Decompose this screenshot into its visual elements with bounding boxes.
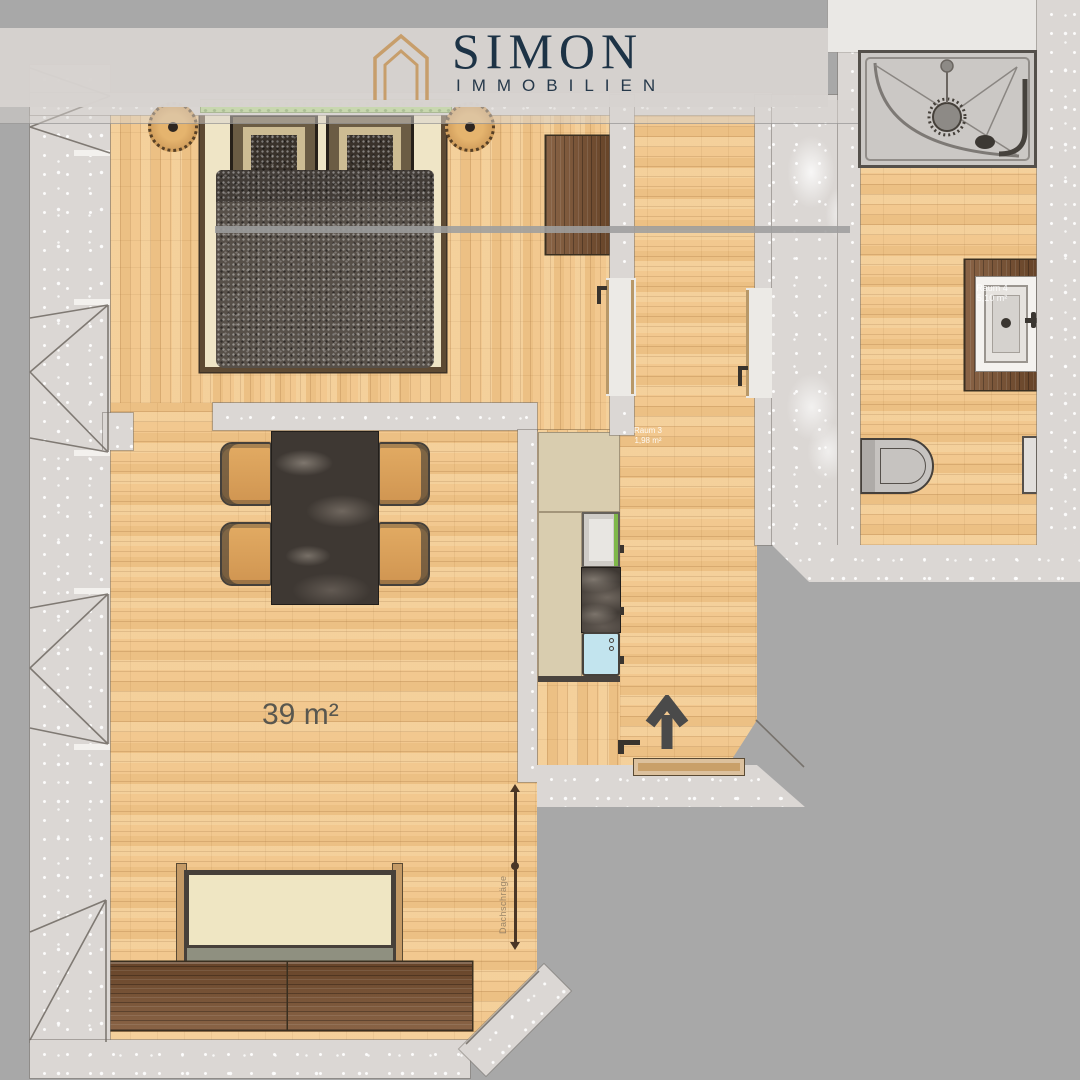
room4-label: Raum 4 5,10 m² [952, 284, 1032, 303]
floor-plan-canvas: Dachschräge 39 m² Raum 3 1,98 m² Raum 4 … [0, 0, 1080, 1080]
room3-area: 1,98 m² [616, 436, 680, 446]
dormer-bay-lines [0, 0, 1080, 1080]
room3-label: Raum 3 1,98 m² [616, 426, 680, 445]
brand-subtitle: IMMOBILIEN [456, 76, 666, 96]
entrance-arrow-icon [645, 695, 689, 751]
living-room-area-label: 39 m² [262, 698, 392, 732]
brand-house-icon [370, 32, 432, 104]
brand-name: SIMON [452, 22, 643, 80]
room3-name: Raum 3 [616, 426, 680, 436]
room4-area: 5,10 m² [952, 294, 1032, 304]
